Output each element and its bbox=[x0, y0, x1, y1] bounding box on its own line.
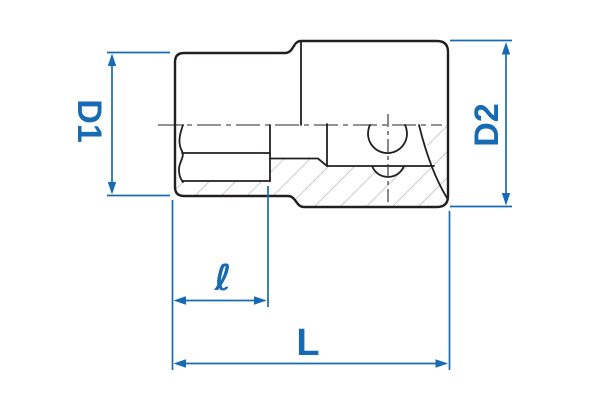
d1-arrow-down bbox=[108, 182, 116, 195]
section-hatching bbox=[160, 118, 460, 218]
drawing-canvas: D1 D2 ℓ L bbox=[0, 0, 600, 420]
dim-d1: D1 bbox=[70, 53, 170, 196]
dim-l-small: ℓ bbox=[173, 186, 269, 370]
l-total-arrow-right bbox=[436, 359, 449, 367]
l-total-arrow-left bbox=[174, 359, 187, 367]
l-small-arrow-right bbox=[254, 296, 267, 304]
d1-label: D1 bbox=[70, 99, 108, 142]
l-total-label: L bbox=[296, 322, 319, 364]
d2-label: D2 bbox=[468, 103, 506, 146]
l-small-label: ℓ bbox=[214, 258, 232, 299]
l-small-arrow-left bbox=[174, 296, 187, 304]
d1-arrow-up bbox=[108, 54, 116, 67]
technical-drawing-svg: D1 D2 ℓ L bbox=[0, 0, 600, 420]
dim-d2: D2 bbox=[450, 41, 512, 207]
d2-arrow-up bbox=[502, 42, 510, 55]
d2-arrow-down bbox=[502, 193, 510, 206]
